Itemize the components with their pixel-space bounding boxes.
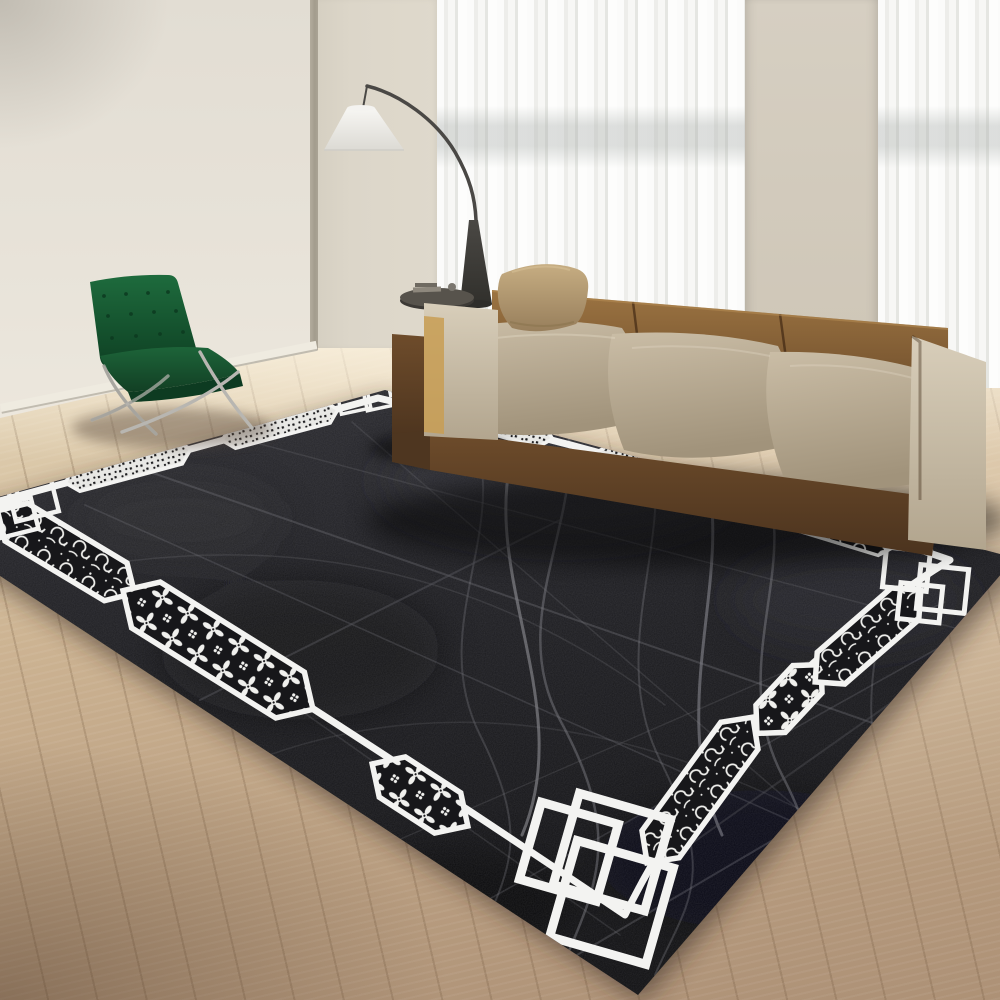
table-ornament	[448, 283, 456, 291]
floor-lamp	[324, 86, 492, 308]
sofa-pillow	[498, 264, 588, 331]
table-book-stack	[413, 287, 441, 293]
sofa-armrest-left-gold	[424, 316, 444, 434]
table-book	[415, 283, 437, 287]
lamp-shade	[324, 108, 404, 150]
lamp-hanger	[363, 86, 367, 108]
sofa	[368, 264, 1000, 566]
furniture-and-rug-layer	[0, 0, 1000, 1000]
living-room-scene	[0, 0, 1000, 1000]
lamp-shade-top	[347, 105, 375, 111]
lamp-arc-stem	[367, 86, 476, 220]
